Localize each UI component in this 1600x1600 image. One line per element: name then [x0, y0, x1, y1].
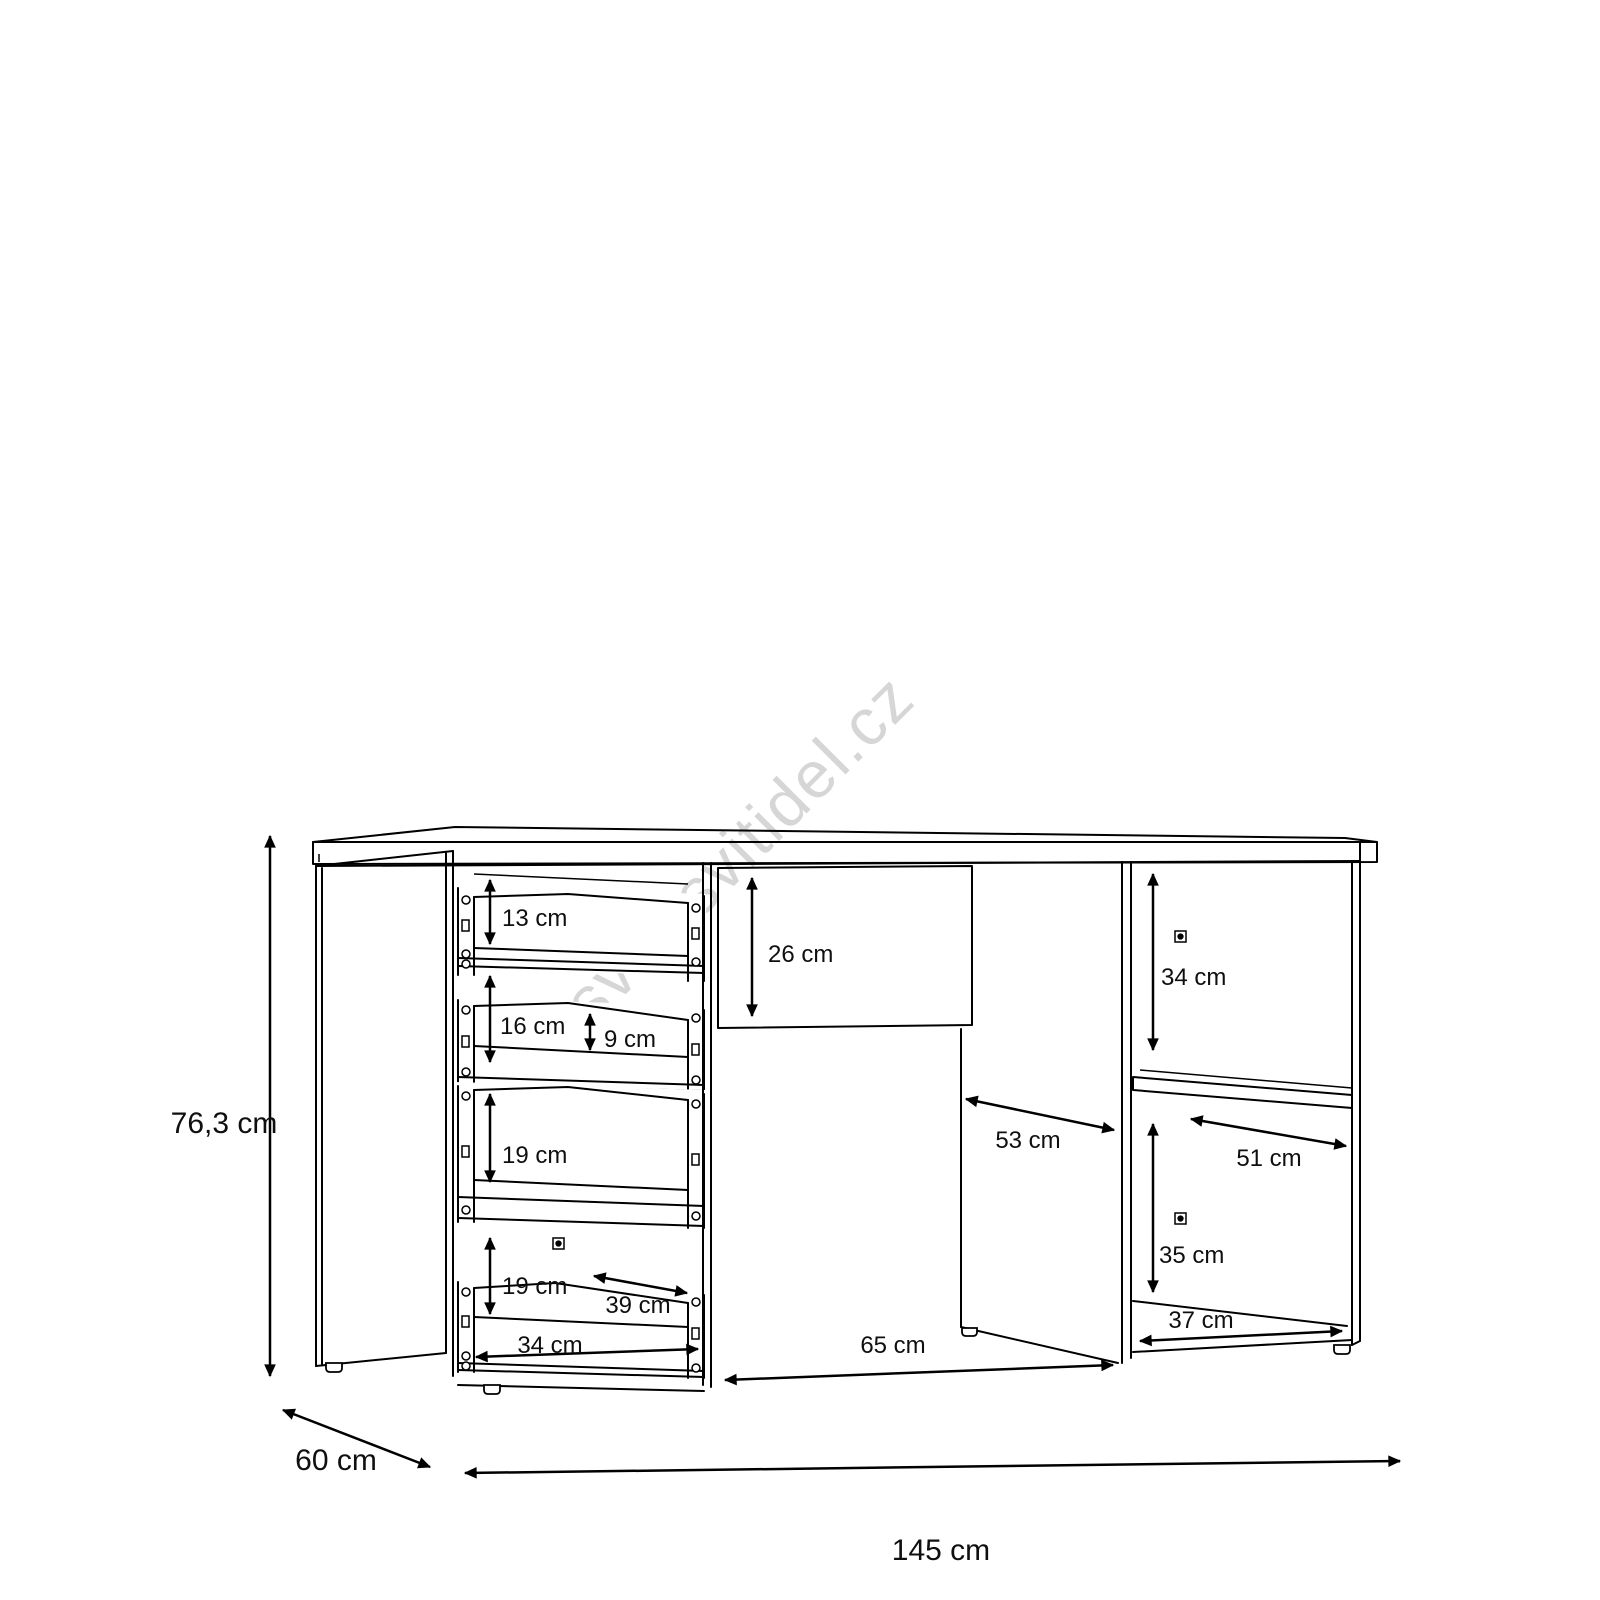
foot-right [1334, 1345, 1350, 1354]
label-right-shelf-width: 51 cm [1236, 1145, 1301, 1172]
label-drawer4: 19 cm [502, 1273, 567, 1300]
dimension-labels: 76,3 cm 60 cm 145 cm 13 cm 16 cm 9 cm 19… [171, 905, 1302, 1567]
cam-screw-left [553, 1238, 564, 1249]
label-drawer2: 16 cm [500, 1013, 565, 1040]
watermark: svet-svitidel.cz [550, 660, 928, 1038]
label-overall-width: 145 cm [892, 1534, 990, 1567]
dim-arrow-right-shelf-width [1191, 1119, 1346, 1146]
drawer-2 [456, 998, 706, 1092]
watermark-text: svet-svitidel.cz [550, 660, 928, 1038]
label-drawer1: 13 cm [502, 905, 567, 932]
foot-drawer-column [484, 1385, 500, 1394]
label-drawer3: 19 cm [502, 1142, 567, 1169]
divider-middle-right [1122, 862, 1131, 1363]
label-middle-width: 65 cm [860, 1332, 925, 1359]
dim-arrow-door-width [966, 1099, 1114, 1130]
cam-screw-right-top [1175, 931, 1186, 942]
label-overall-depth: 60 cm [295, 1444, 377, 1477]
drawer-3 [456, 1082, 706, 1230]
label-right-floor: 37 cm [1168, 1307, 1233, 1334]
diagram-page: svet-svitidel.cz [0, 0, 1600, 1600]
label-overall-height: 76,3 cm [171, 1107, 278, 1140]
foot-middle [962, 1328, 977, 1336]
middle-top-drawer [718, 866, 972, 1028]
dimension-arrows [270, 836, 1400, 1473]
furniture-dimension-diagram: svet-svitidel.cz [0, 0, 1600, 1600]
label-drawer2-inner: 9 cm [604, 1026, 656, 1053]
label-top-drawer: 26 cm [768, 941, 833, 968]
middle-compartment [961, 1029, 1118, 1363]
left-door [316, 851, 453, 1376]
cam-screw-right-bottom [1175, 1213, 1186, 1224]
foot-left [326, 1363, 342, 1372]
label-drawer-depth: 39 cm [605, 1292, 670, 1319]
shelf [1133, 1077, 1352, 1108]
label-door-width: 53 cm [995, 1127, 1060, 1154]
label-right-bottom: 35 cm [1159, 1242, 1224, 1269]
dim-arrow-middle-width [725, 1365, 1113, 1380]
drawer-1 [456, 886, 706, 981]
dim-arrow-overall-width [465, 1461, 1400, 1473]
label-drawer-width: 34 cm [517, 1332, 582, 1359]
top-panel [313, 827, 1377, 864]
label-right-top: 34 cm [1161, 964, 1226, 991]
